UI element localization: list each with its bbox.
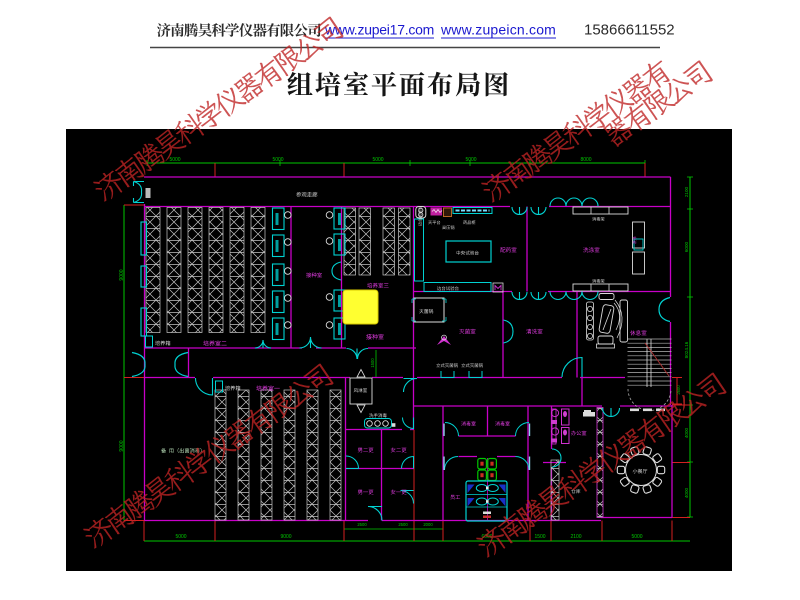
- svg-text:6000: 6000: [684, 241, 689, 252]
- svg-text:4000: 4000: [684, 427, 689, 438]
- svg-text:5000: 5000: [631, 534, 642, 540]
- svg-text:8024.16: 8024.16: [684, 341, 689, 358]
- svg-text:9000: 9000: [119, 269, 125, 280]
- svg-text:www.zupeicn.com: www.zupeicn.com: [440, 22, 556, 38]
- svg-text:8000: 8000: [580, 157, 591, 163]
- svg-text:5000: 5000: [372, 157, 383, 163]
- svg-text:9000: 9000: [280, 534, 291, 540]
- svg-text:1500: 1500: [370, 358, 375, 368]
- svg-text:2500: 2500: [357, 522, 367, 527]
- svg-text:15866611552: 15866611552: [584, 22, 675, 39]
- svg-text:2600: 2600: [676, 385, 681, 395]
- svg-text:2100: 2100: [570, 534, 581, 540]
- svg-text:2100: 2100: [684, 186, 689, 197]
- svg-text:5000: 5000: [465, 157, 476, 163]
- svg-text:5000: 5000: [272, 157, 283, 163]
- svg-text:2000: 2000: [423, 522, 433, 527]
- svg-text:1500: 1500: [534, 534, 545, 540]
- svg-text:4000: 4000: [684, 487, 689, 498]
- svg-text:5000: 5000: [175, 534, 186, 540]
- svg-text:5000: 5000: [169, 157, 180, 163]
- svg-text:2500: 2500: [398, 522, 408, 527]
- svg-text:www.zupei17.com: www.zupei17.com: [324, 22, 434, 38]
- svg-text:9000: 9000: [119, 440, 125, 451]
